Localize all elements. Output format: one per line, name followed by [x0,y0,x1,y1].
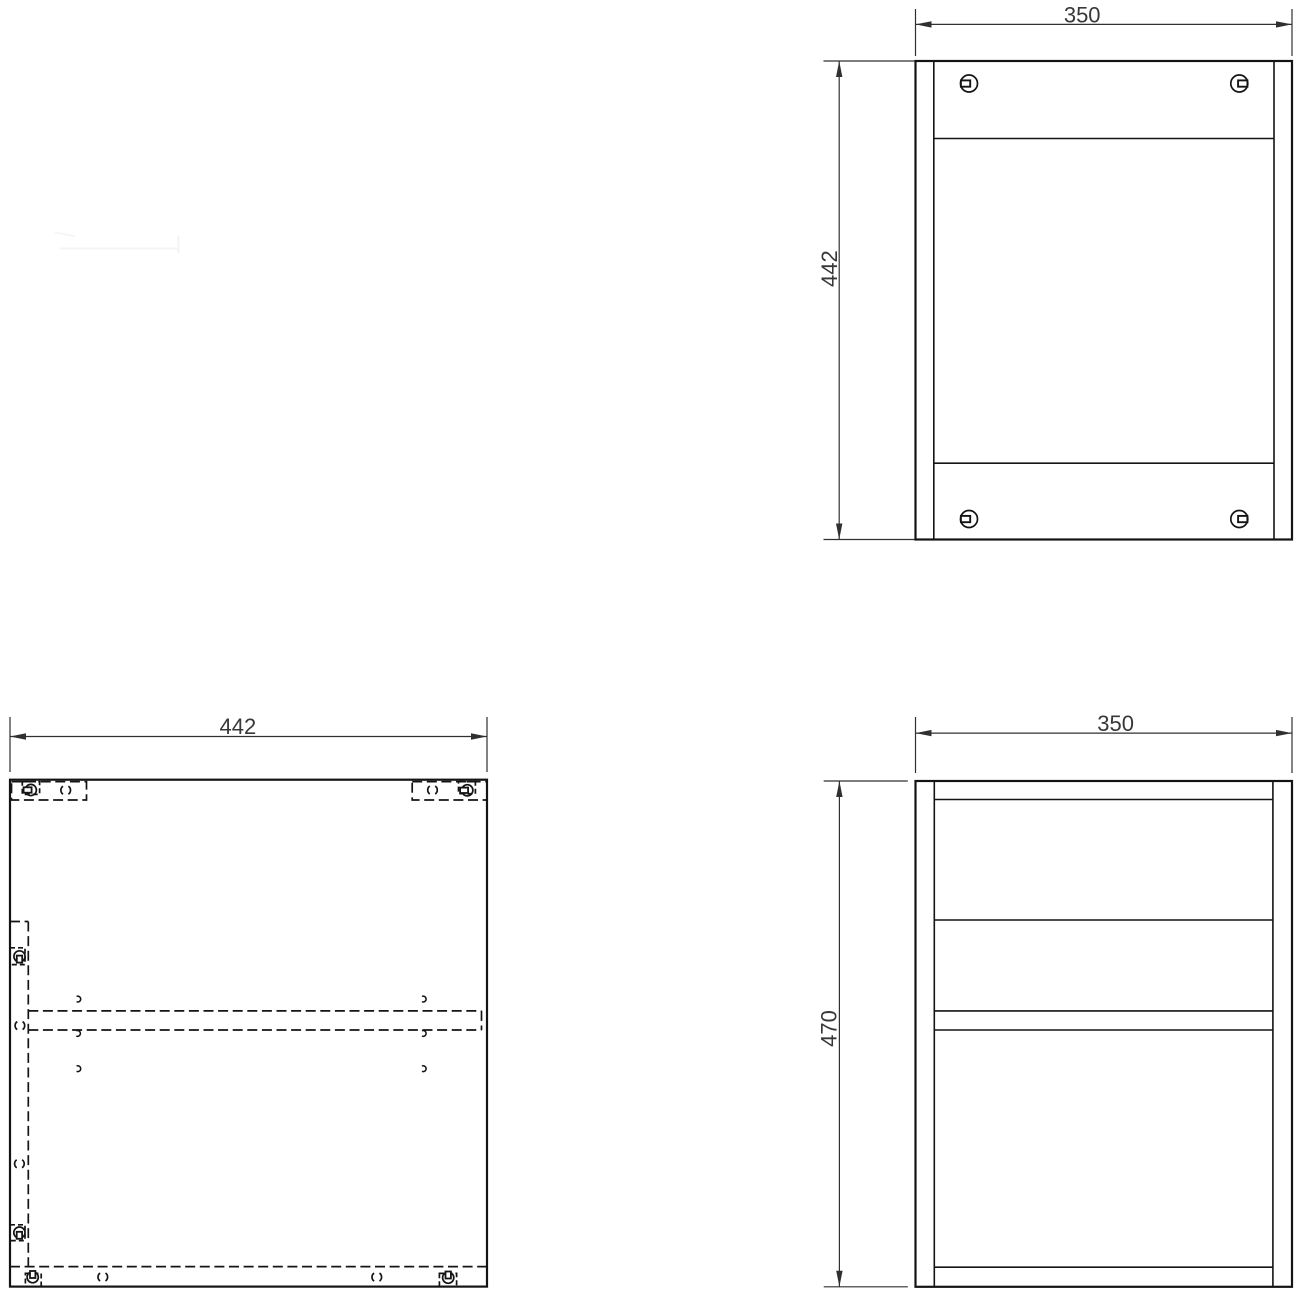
svg-text:350: 350 [1064,3,1101,28]
svg-text:350: 350 [1097,711,1134,736]
svg-text:442: 442 [817,250,842,287]
svg-text:470: 470 [817,1010,842,1047]
svg-text:442: 442 [220,714,257,739]
